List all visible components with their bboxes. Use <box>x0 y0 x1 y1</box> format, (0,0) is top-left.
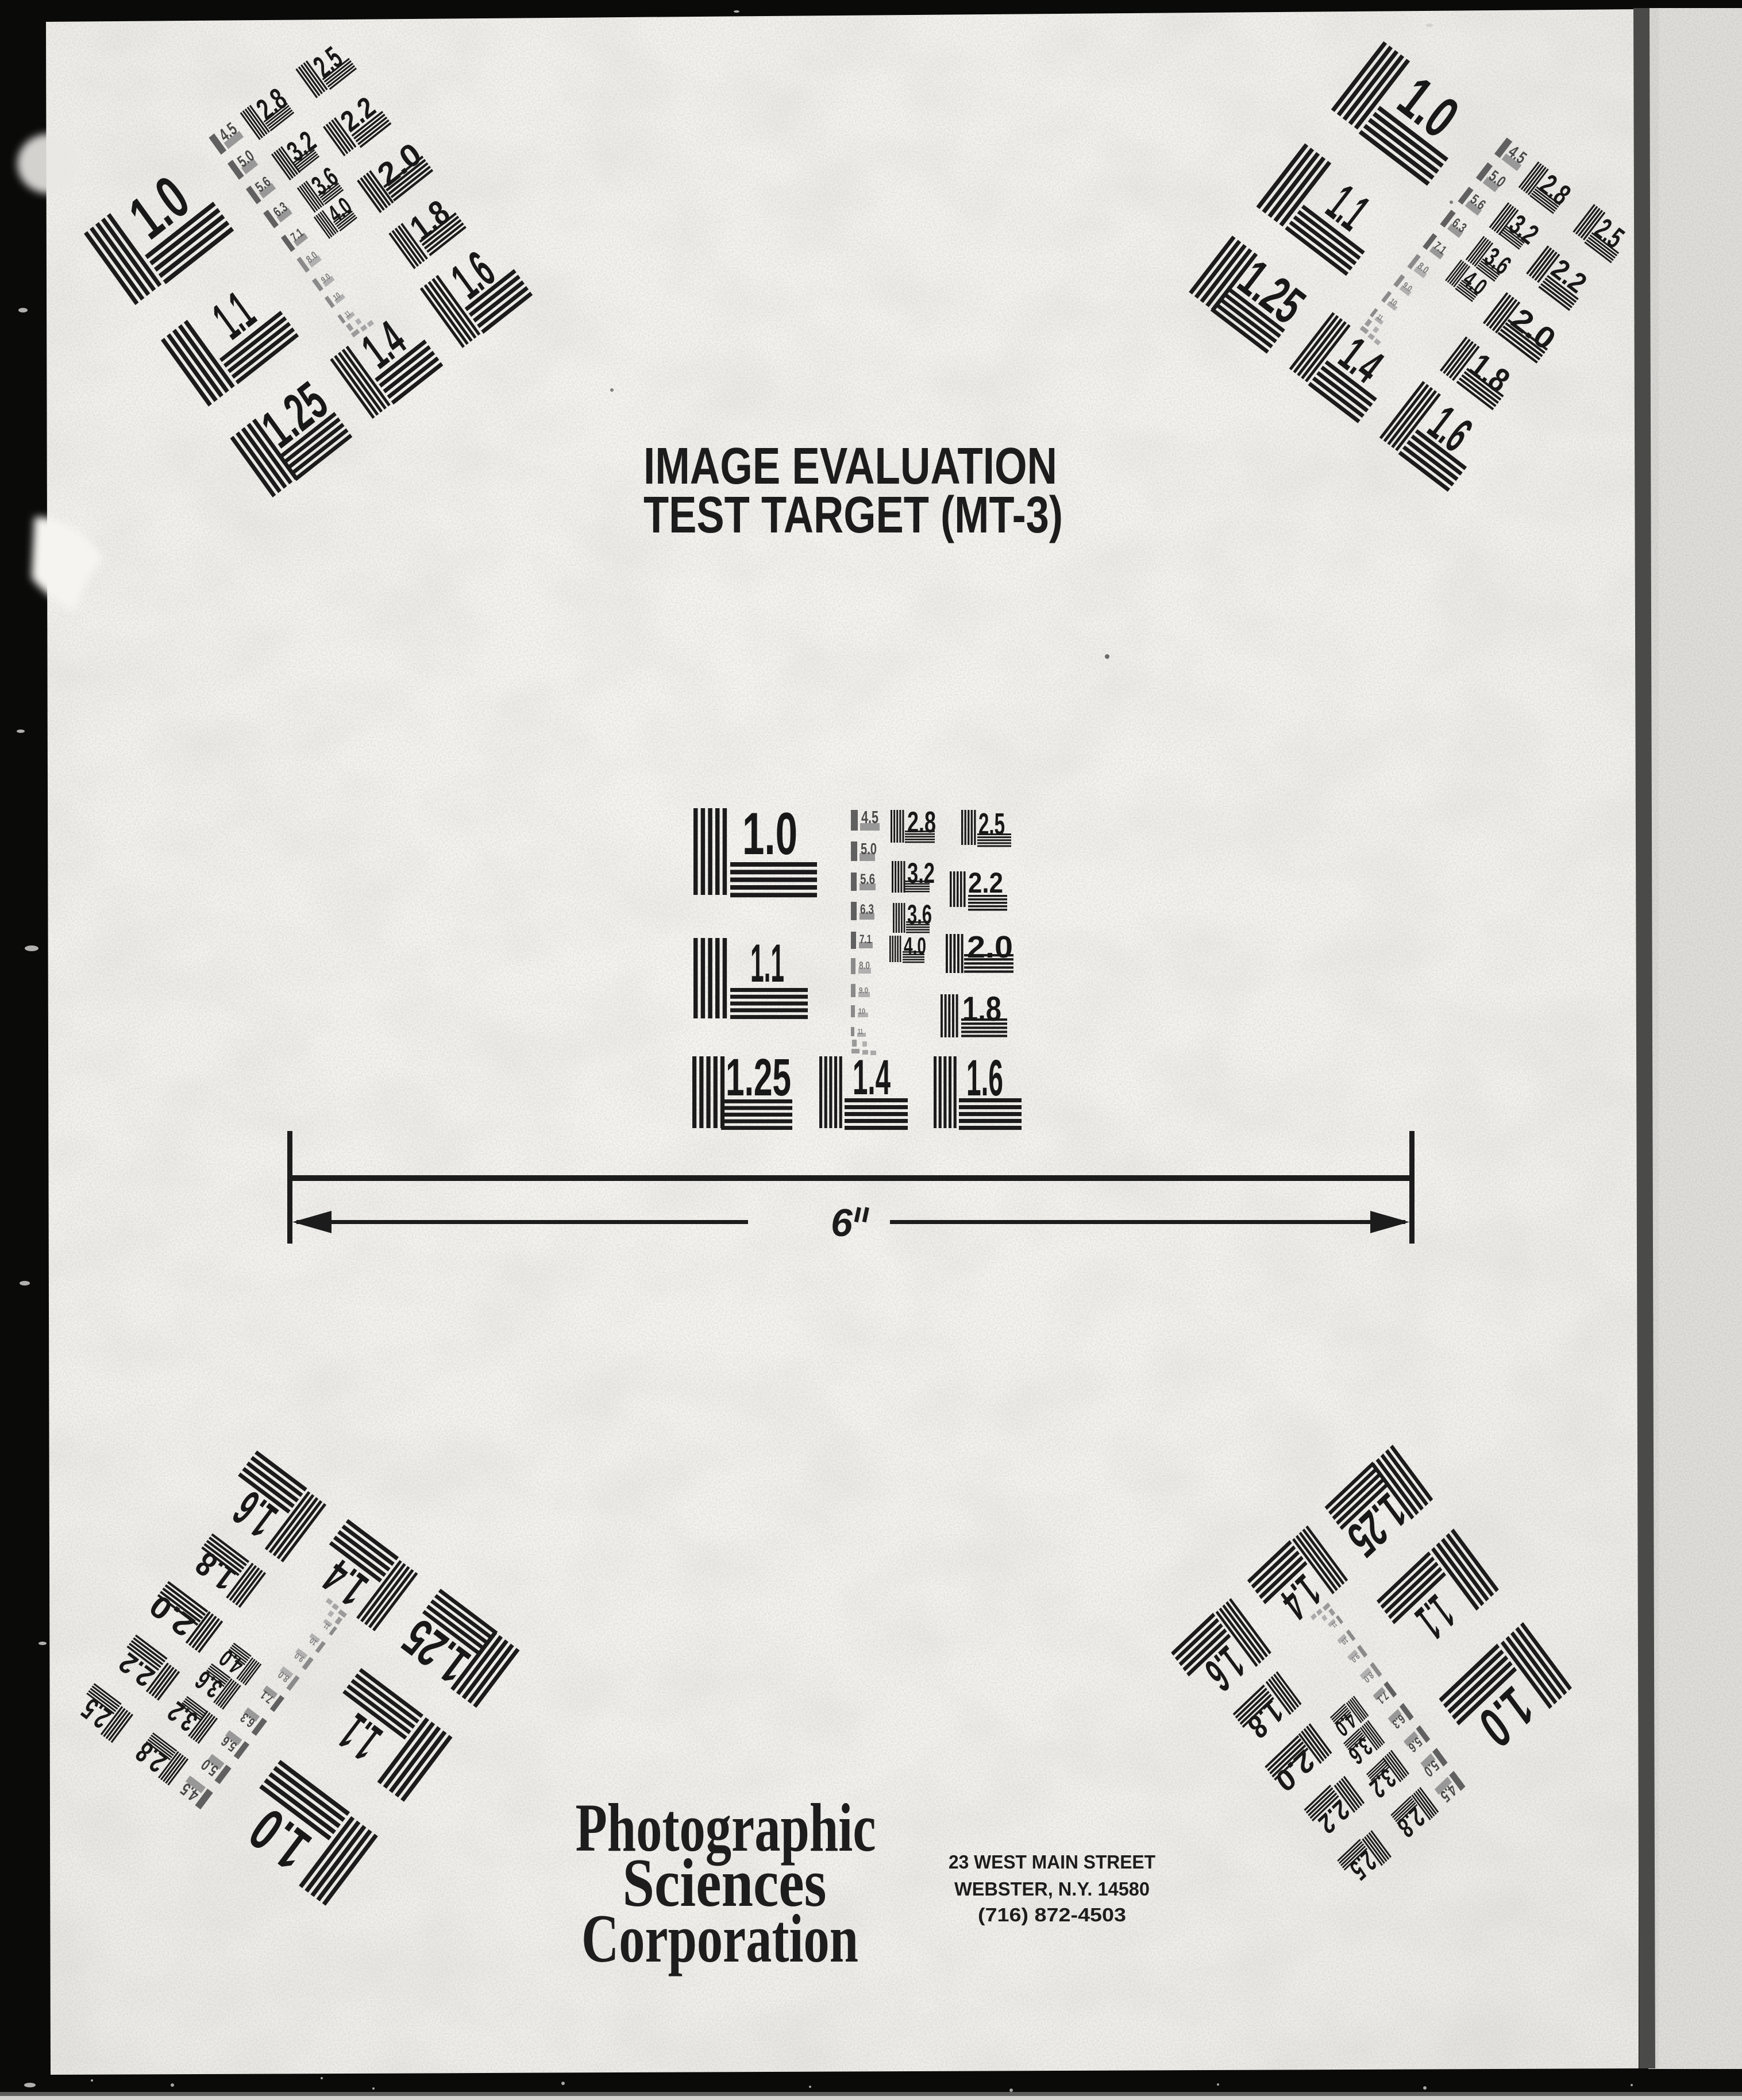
svg-text:6: 6 <box>831 1201 853 1245</box>
svg-text:TEST TARGET (MT-3): TEST TARGET (MT-3) <box>643 487 1063 544</box>
svg-text:Corporation: Corporation <box>581 1900 858 1977</box>
svg-text:(716) 872-4503: (716) 872-4503 <box>978 1904 1126 1925</box>
svg-text:WEBSTER, N.Y. 14580: WEBSTER, N.Y. 14580 <box>954 1878 1150 1900</box>
svg-text:23 WEST MAIN STREET: 23 WEST MAIN STREET <box>949 1851 1155 1873</box>
